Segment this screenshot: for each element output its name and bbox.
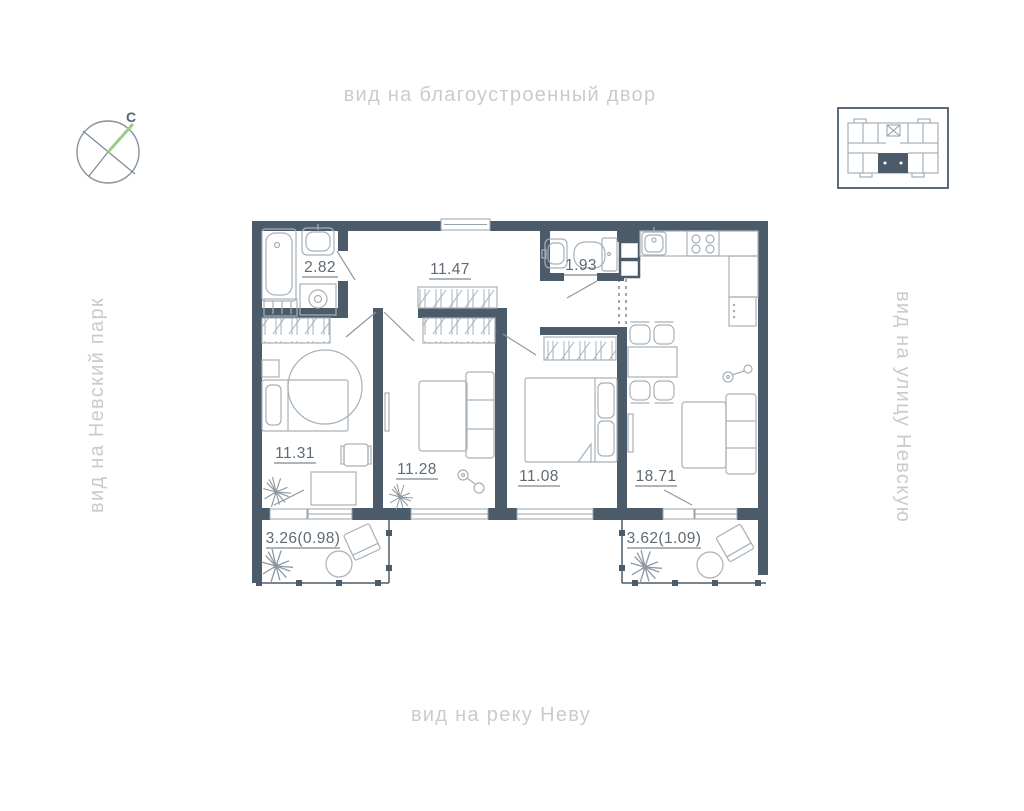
room-area-wc: 1.93 — [565, 257, 597, 274]
stove — [687, 231, 719, 256]
view-label-top: вид на благоустроенный двор — [344, 84, 657, 106]
compass-north-letter: С — [126, 109, 136, 125]
wardrobe — [418, 287, 497, 308]
zone-boundary — [619, 279, 626, 327]
balcony-door-opening-left — [270, 509, 307, 519]
bedroom-middle-door — [384, 312, 414, 341]
room-area-kitchen-living: 18.71 — [636, 468, 677, 485]
bedroom-right-door — [503, 334, 536, 355]
single-bed — [262, 380, 348, 431]
plant-icon — [262, 549, 293, 583]
room-area-hallway: 11.47 — [430, 261, 470, 278]
room-area-bedroom-left: 11.31 — [275, 445, 315, 462]
plant-icon — [631, 550, 662, 584]
plant-icon — [263, 477, 291, 507]
floor-plan-canvas: вид на благоустроенный двор вид на реку … — [0, 0, 1024, 811]
balcony-area-left: 3.26(0.98) — [266, 530, 341, 547]
room-area-bedroom-middle: 11.28 — [397, 461, 437, 478]
view-label-left: вид на Невский парк — [86, 297, 108, 513]
desk-chair — [344, 444, 368, 466]
balcony-area-right: 3.62(1.09) — [627, 530, 702, 547]
floor-lamp — [458, 470, 468, 480]
view-label-right: вид на улицу Невскую — [892, 291, 914, 523]
double-bed — [525, 378, 617, 462]
wardrobe — [423, 318, 495, 343]
pillow — [598, 383, 614, 418]
room-area-bathroom: 2.82 — [304, 259, 336, 276]
vent-shaft — [620, 242, 639, 259]
sofa-living — [682, 394, 756, 474]
vent-shaft — [620, 260, 639, 277]
balcony-door-opening-right — [663, 509, 694, 519]
room-area-bedroom-right: 11.08 — [519, 468, 559, 485]
pillow — [598, 421, 614, 456]
tv-living — [628, 414, 633, 452]
pillow — [266, 385, 281, 425]
fridge — [729, 297, 756, 326]
round-rug — [288, 350, 362, 424]
desk — [311, 472, 356, 505]
balcony-table — [326, 551, 352, 577]
bedroom-middle-furniture — [385, 372, 494, 510]
floor-lamp — [723, 365, 752, 382]
bedroom-left-door — [346, 312, 376, 337]
wc-door — [567, 281, 597, 298]
dining-set — [628, 322, 677, 403]
nightstand — [262, 360, 279, 377]
compass-north-icon: С — [77, 109, 139, 183]
bedroom-left-furniture — [262, 350, 371, 507]
balcony-right-door — [664, 490, 692, 505]
wardrobe — [544, 337, 616, 360]
bedroom-right-furniture — [525, 378, 617, 462]
balcony-chair — [716, 524, 754, 562]
building-position-icon — [838, 108, 948, 188]
tv-bedroom — [385, 393, 389, 431]
sofa-bedroom — [419, 381, 467, 451]
wardrobe — [262, 318, 330, 343]
floor-plan-page: вид на благоустроенный двор вид на реку … — [0, 0, 1024, 811]
view-label-bottom: вид на реку Неву — [411, 704, 591, 726]
bathroom-door — [337, 251, 355, 280]
bathtub — [262, 229, 296, 301]
balcony-table — [697, 552, 723, 578]
plant-icon — [389, 484, 413, 510]
